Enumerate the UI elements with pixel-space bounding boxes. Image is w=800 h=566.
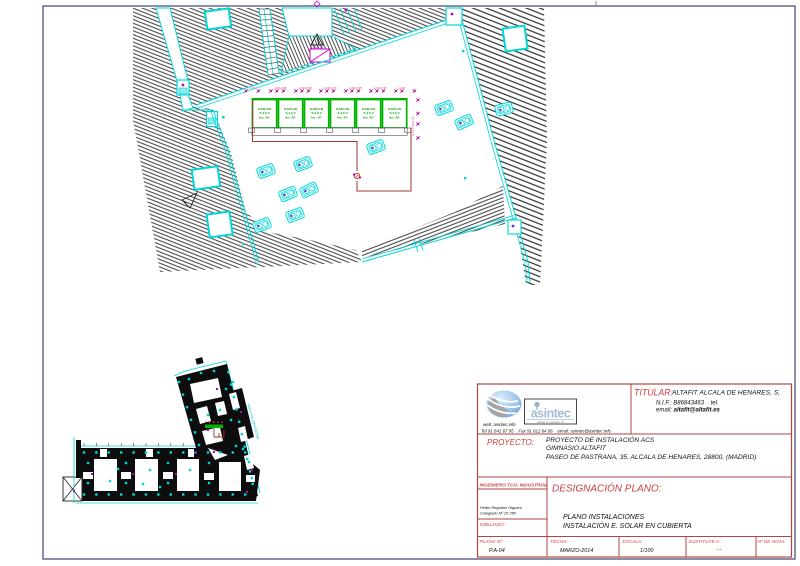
svg-text:1.00: 1.00 — [399, 86, 405, 90]
svg-text:Inc. 45°: Inc. 45° — [337, 115, 349, 119]
svg-text:1.00 0.45: 1.00 0.45 — [274, 86, 287, 90]
svg-text:ESCALA:: ESCALA: — [623, 539, 643, 544]
svg-text:TITULAR:: TITULAR: — [634, 388, 674, 398]
svg-text:Inc. 45°: Inc. 45° — [389, 115, 401, 119]
svg-text:Nº DE HOJA:: Nº DE HOJA: — [758, 539, 787, 544]
svg-text:FECHA:: FECHA: — [551, 539, 569, 544]
svg-text:1.00: 1.00 — [249, 86, 255, 90]
svg-text:calidad en aparatos, SL: calidad en aparatos, SL — [537, 420, 565, 424]
svg-text:Inc. 45°: Inc. 45° — [285, 115, 297, 119]
svg-text:DIBUJADO:: DIBUJADO: — [480, 522, 506, 527]
svg-text:N.I.F.: B86843463 tel.: N.I.F.: B86843463 tel. — [656, 401, 719, 407]
svg-text:1.00 0.45: 1.00 0.45 — [374, 86, 387, 90]
svg-text:INGENIERO TCO. INDUSTRIAL: INGENIERO TCO. INDUSTRIAL — [480, 483, 549, 488]
svg-text:P.A-04: P.A-04 — [489, 548, 505, 554]
svg-text:1.00 0.45: 1.00 0.45 — [324, 86, 337, 90]
svg-text:DESIGNACIÓN PLANO:: DESIGNACIÓN PLANO: — [552, 482, 662, 495]
svg-text:MARZO-2014: MARZO-2014 — [560, 548, 593, 554]
svg-text:SUSTITUYE A :: SUSTITUYE A : — [689, 539, 723, 544]
svg-text:PROYECTO:: PROYECTO: — [487, 438, 534, 447]
svg-text:1/100: 1/100 — [640, 548, 654, 554]
svg-text:Inc. 45°: Inc. 45° — [259, 115, 271, 119]
svg-text:1.00 0.45: 1.00 0.45 — [349, 86, 362, 90]
svg-text:INSTALACIÓN E. SOLAR EN CUBIER: INSTALACIÓN E. SOLAR EN CUBIERTA — [563, 521, 692, 530]
svg-text:- -: - - — [716, 547, 721, 553]
svg-text:Colegiado Nº 15.780: Colegiado Nº 15.780 — [480, 511, 517, 516]
svg-text:Tel 91 641 67 95 Fax 91 61: Tel 91 641 67 95 Fax 91 612 64 06 email:… — [481, 428, 612, 433]
svg-text:Inc. 45°: Inc. 45° — [363, 115, 375, 119]
svg-text:Pedro Regodón Higuero: Pedro Regodón Higuero — [480, 505, 523, 510]
svg-text:PLANO Nº:: PLANO Nº: — [480, 539, 504, 544]
svg-text:web: asintec.info: web: asintec.info — [483, 422, 516, 427]
svg-text:asintec: asintec — [531, 407, 571, 421]
svg-text:GIMNASIO ALTAFIT: GIMNASIO ALTAFIT — [546, 445, 607, 452]
svg-text:PROYECTO DE INSTALACIÓN ACS: PROYECTO DE INSTALACIÓN ACS — [546, 435, 655, 444]
svg-text:ALTAFIT ALCALA DE HENARES, S.: ALTAFIT ALCALA DE HENARES, S. — [671, 390, 780, 397]
svg-text:email: altafit@altafit.es: email: altafit@altafit.es — [656, 408, 721, 414]
svg-text:PASEO DE PASTRANA, 35, ALCALA: PASEO DE PASTRANA, 35, ALCALA DE HENARES… — [546, 454, 756, 461]
svg-text:1.00 0.45: 1.00 0.45 — [299, 86, 312, 90]
svg-text:PLANO INSTALACIONES: PLANO INSTALACIONES — [563, 514, 645, 521]
svg-text:2.77 1.00 0.72: 2.77 1.00 0.72 — [411, 116, 415, 137]
svg-text:Inc. 45°: Inc. 45° — [311, 115, 323, 119]
